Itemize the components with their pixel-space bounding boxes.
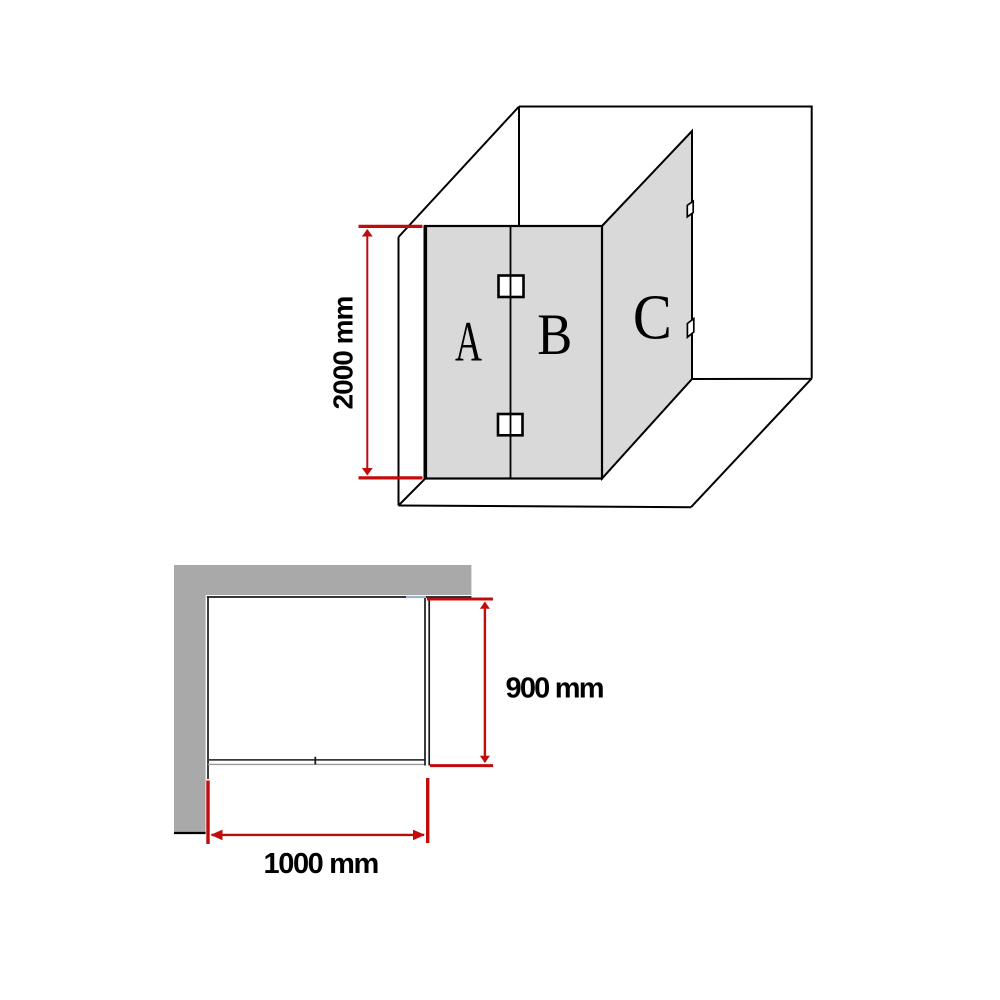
svg-text:C: C (633, 283, 672, 353)
svg-text:A: A (455, 311, 482, 374)
svg-text:B: B (537, 302, 572, 367)
svg-text:1000 mm: 1000 mm (264, 848, 378, 880)
svg-text:2000 mm: 2000 mm (328, 296, 359, 409)
svg-text:900 mm: 900 mm (506, 673, 603, 705)
